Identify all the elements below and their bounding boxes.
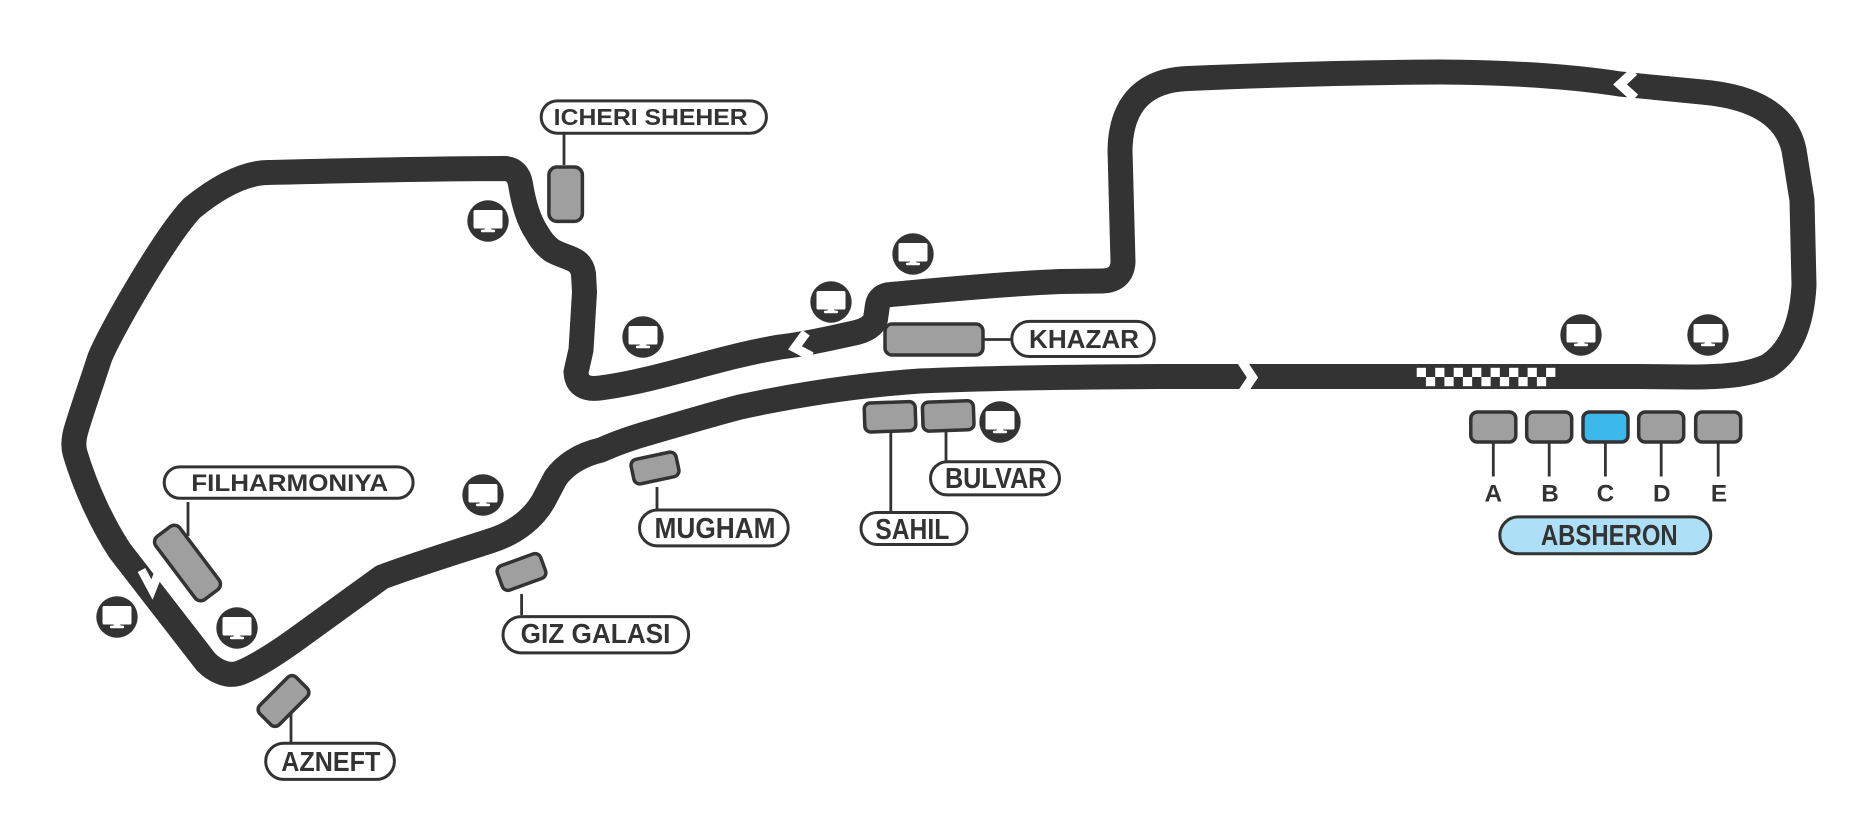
- svg-text:GIZ GALASI: GIZ GALASI: [521, 618, 671, 649]
- svg-text:MUGHAM: MUGHAM: [655, 513, 776, 545]
- svg-text:KHAZAR: KHAZAR: [1029, 326, 1139, 354]
- svg-text:SAHIL: SAHIL: [875, 514, 949, 546]
- svg-text:A: A: [1485, 480, 1503, 507]
- svg-text:B: B: [1541, 480, 1559, 507]
- svg-text:D: D: [1653, 480, 1671, 507]
- svg-text:AZNEFT: AZNEFT: [281, 746, 380, 777]
- svg-text:ICHERI SHEHER: ICHERI SHEHER: [554, 104, 748, 130]
- svg-text:ABSHERON: ABSHERON: [1541, 520, 1678, 552]
- svg-text:BULVAR: BULVAR: [945, 463, 1047, 495]
- svg-text:E: E: [1711, 480, 1727, 507]
- svg-text:C: C: [1597, 480, 1615, 507]
- svg-text:FILHARMONIYA: FILHARMONIYA: [191, 470, 388, 497]
